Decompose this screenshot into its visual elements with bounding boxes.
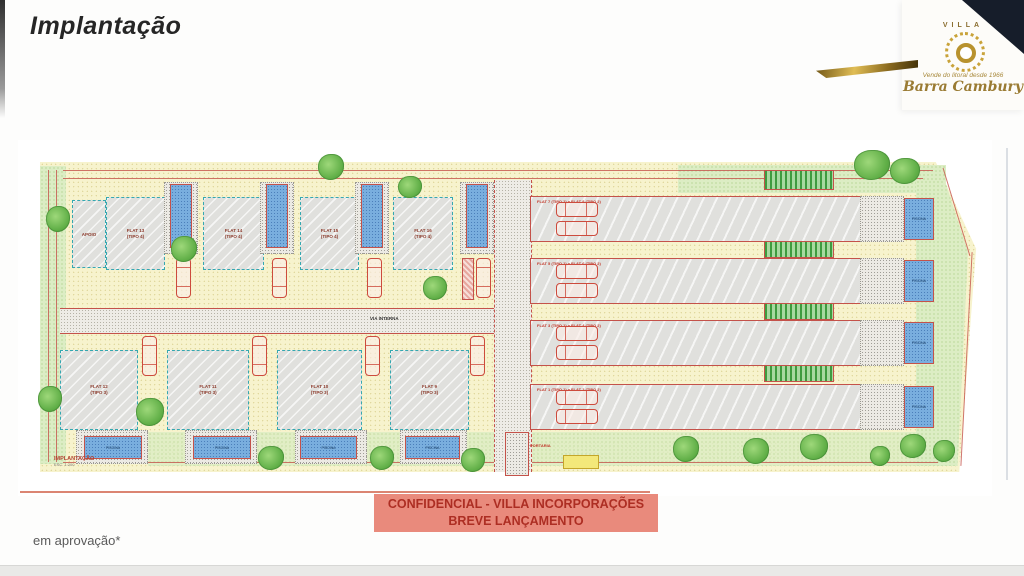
pool: PISCINA — [904, 198, 934, 240]
parked-car — [470, 336, 485, 376]
parked-car — [556, 283, 598, 298]
pergola-green-bar — [764, 302, 834, 320]
banner-line2: BREVE LANÇAMENTO — [374, 513, 658, 530]
parked-car — [556, 390, 598, 405]
parked-car — [556, 264, 598, 279]
building-flat-15: FLAT 15 (TIPO 4) — [300, 197, 359, 270]
pool: PISCINA — [904, 386, 934, 428]
logo-name: Barra Cambury — [902, 79, 1024, 95]
pool-label: PISCINA — [912, 279, 926, 283]
page-title: Implantação — [30, 12, 181, 41]
pool-label: PISCINA — [912, 341, 926, 345]
pool — [266, 184, 288, 248]
parked-car — [367, 258, 382, 298]
parked-car — [556, 221, 598, 236]
logo-emblem-icon: O — [945, 32, 985, 72]
pool-label: PISCINA — [425, 446, 439, 450]
gate-label: PORTARIA — [530, 443, 551, 448]
building-type: (TIPO 3) — [90, 390, 107, 396]
parked-car — [556, 409, 598, 424]
banner-line1: CONFIDENCIAL - VILLA INCORPORAÇÕES — [374, 496, 658, 513]
confidential-banner: CONFIDENCIAL - VILLA INCORPORAÇÕES BREVE… — [374, 494, 658, 532]
pool: PISCINA — [904, 260, 934, 302]
logo-emblem-ring — [956, 43, 976, 63]
pool-deck — [860, 258, 904, 304]
parked-car — [252, 336, 267, 376]
pool-label: PISCINA — [215, 446, 229, 450]
building-type: (TIPO 4) — [321, 234, 338, 240]
pool-label: PISCINA — [321, 446, 335, 450]
building-flat-13: FLAT 13 (TIPO 4) — [106, 197, 165, 270]
building-type: (TIPO 3) — [421, 390, 438, 396]
building-type: (TIPO 4) — [127, 234, 144, 240]
parked-car — [142, 336, 157, 376]
pergola-green-bar — [764, 364, 834, 382]
parked-car — [476, 258, 491, 298]
site-plan: VIA INTERNA APOIO FLAT 13 (TIPO 4) FLAT … — [18, 140, 992, 496]
building-flat-14: FLAT 14 (TIPO 4) — [203, 197, 264, 270]
building-type: (TIPO 4) — [414, 234, 431, 240]
pool-label: PISCINA — [106, 446, 120, 450]
pool: PISCINA — [405, 436, 460, 459]
building-flat-12: FLAT 12 (TIPO 3) — [60, 350, 138, 430]
brand-logo-card: VILLA O Vende do litoral desde 1966 Barr… — [902, 0, 1024, 110]
pool-deck — [860, 320, 904, 366]
pool: PISCINA — [193, 436, 251, 459]
building-type: (TIPO 4) — [225, 234, 242, 240]
road-label: VIA INTERNA — [370, 316, 399, 321]
pergola-green-bar — [764, 170, 834, 190]
pool-deck — [860, 384, 904, 430]
building-flat-9: FLAT 9 (TIPO 3) — [390, 350, 469, 430]
parked-car — [176, 258, 191, 298]
scan-edge-left — [0, 0, 5, 118]
parked-car — [556, 202, 598, 217]
parked-car — [556, 345, 598, 360]
building-type: (TIPO 3) — [199, 390, 216, 396]
internal-road-horizontal — [60, 308, 532, 334]
building-type: (TIPO 3) — [311, 390, 328, 396]
approval-footnote: em aprovação* — [33, 533, 120, 548]
pool: PISCINA — [300, 436, 357, 459]
pool — [361, 184, 383, 248]
building-apoio: APOIO — [72, 200, 106, 268]
internal-road-vertical — [494, 180, 532, 472]
plan-caption-scale: ESC. 1:200 — [54, 462, 94, 467]
pergola-green-bar — [764, 240, 834, 258]
entrance-marker — [563, 455, 599, 469]
parked-car — [556, 326, 598, 341]
scan-edge-right-line — [1006, 148, 1008, 480]
building-flat-16: FLAT 16 (TIPO 4) — [393, 197, 453, 270]
pool: PISCINA — [904, 322, 934, 364]
parked-car — [365, 336, 380, 376]
pool-label: PISCINA — [912, 217, 926, 221]
pool-deck — [860, 196, 904, 242]
scan-edge-bottom — [0, 565, 1024, 576]
service-structure — [462, 258, 474, 300]
pool-label: PISCINA — [912, 405, 926, 409]
pool — [466, 184, 488, 248]
building-flat-11: FLAT 11 (TIPO 3) — [167, 350, 249, 430]
logo-brand-text: VILLA — [902, 22, 1024, 29]
gatehouse — [505, 432, 529, 476]
building-flat-10: FLAT 10 (TIPO 3) — [277, 350, 362, 430]
plan-caption: IMPLANTAÇÃO ESC. 1:200 — [54, 456, 94, 467]
titleblock-line — [20, 491, 650, 493]
parked-car — [272, 258, 287, 298]
logo-tagline: Vende do litoral desde 1966 — [902, 72, 1024, 79]
building-label: APOIO — [82, 232, 97, 237]
